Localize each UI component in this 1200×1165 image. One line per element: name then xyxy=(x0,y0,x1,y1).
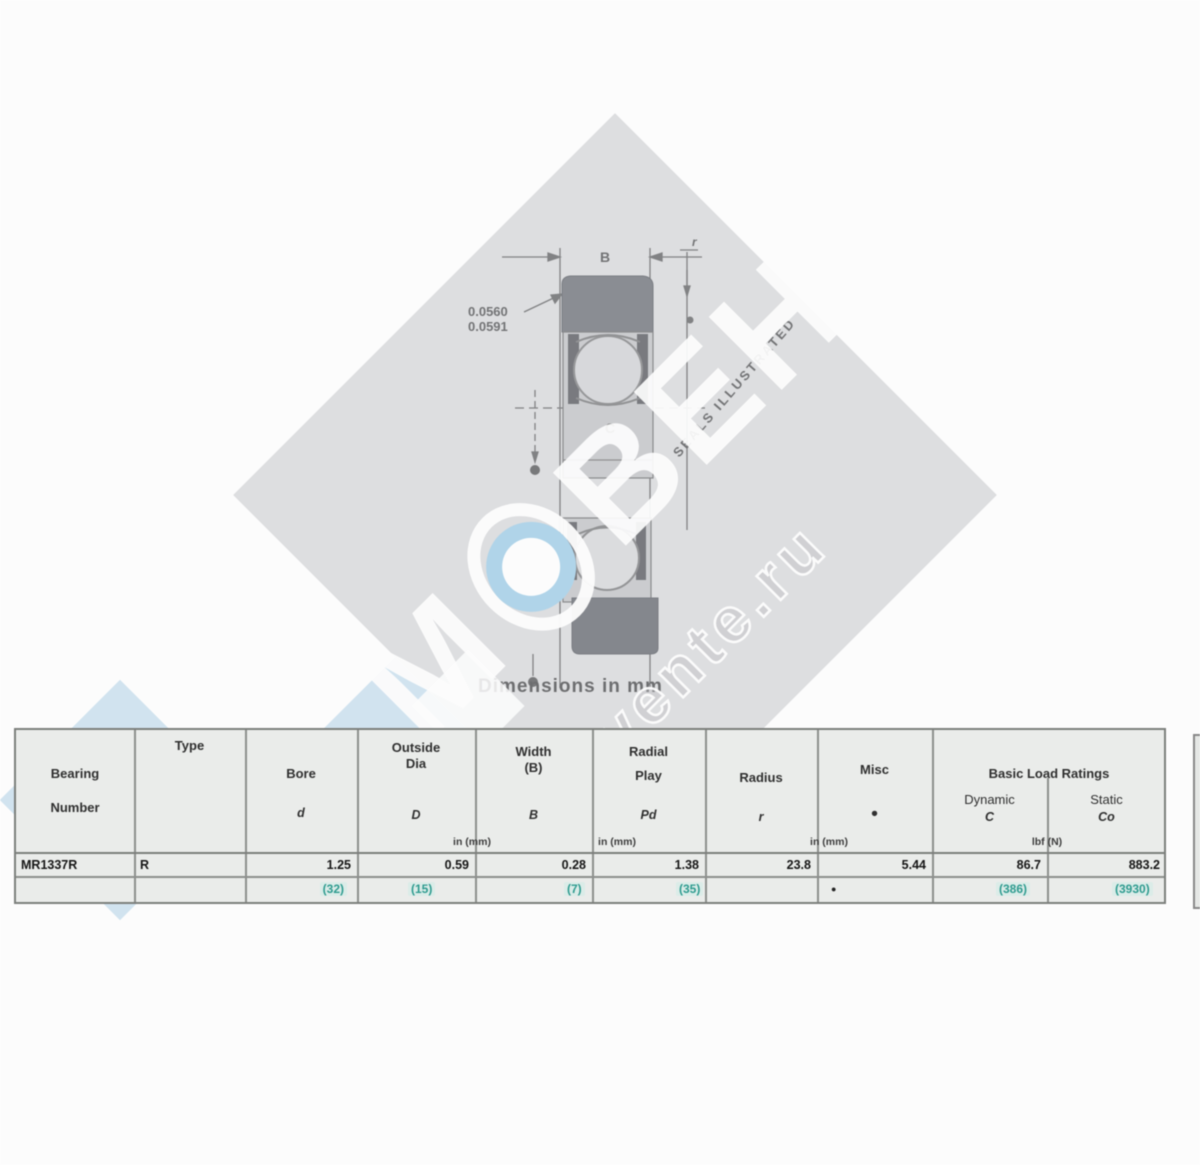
symbol-r: r xyxy=(705,810,817,824)
cell-play: 1.38 xyxy=(592,858,699,872)
header-dia: Dia xyxy=(357,756,475,772)
unit-note-right: in (mm) xyxy=(779,836,879,848)
header-type: Type xyxy=(134,738,245,754)
header-load-ratings: Basic Load Ratings xyxy=(932,766,1166,782)
cell-od: 0.59 xyxy=(357,858,469,872)
cell-play-mm: (35) xyxy=(676,882,703,896)
cell-od-mm: (15) xyxy=(408,882,435,896)
header-number: Number xyxy=(16,800,134,816)
header-play: Play xyxy=(592,768,705,784)
symbol-d: d xyxy=(245,806,357,820)
spec-table: Bearing Number Type Bore d Outside Dia D… xyxy=(14,728,1166,904)
table-row-border xyxy=(16,876,1164,878)
header-width-b: (B) xyxy=(475,760,592,776)
header-misc: Misc xyxy=(817,762,932,778)
catalog-page: B r C 0.0560 0.0591 SEALS ILLUSTRATED Di… xyxy=(0,0,1200,1165)
symbol-co: Co xyxy=(1047,810,1166,824)
symbol-dot: ● xyxy=(817,806,932,820)
symbol-c: C xyxy=(932,810,1047,824)
cell-static-n: (3930) xyxy=(1112,882,1153,896)
header-bearing: Bearing xyxy=(16,766,134,782)
header-outside: Outside xyxy=(357,740,475,756)
unit-note-left: in (mm) xyxy=(422,836,522,848)
cell-dynamic-n: (386) xyxy=(996,882,1030,896)
unit-note-mid: in (mm) xyxy=(567,836,667,848)
cell-static: 883.2 xyxy=(1047,858,1160,872)
symbol-B: B xyxy=(475,808,592,822)
header-radius: Radius xyxy=(705,770,817,786)
cell-dynamic: 86.7 xyxy=(932,858,1041,872)
cell-radius: 23.8 xyxy=(705,858,811,872)
cell-width-mm: (7) xyxy=(564,882,585,896)
header-static: Static xyxy=(1047,792,1166,808)
cell-type: R xyxy=(140,858,149,872)
cell-misc: 5.44 xyxy=(817,858,926,872)
header-dynamic: Dynamic xyxy=(932,792,1047,808)
header-width: Width xyxy=(475,744,592,760)
header-bore: Bore xyxy=(245,766,357,782)
symbol-D: D xyxy=(357,808,475,822)
cell-width: 0.28 xyxy=(475,858,586,872)
symbol-pd: Pd xyxy=(592,808,705,822)
cell-radius-mark: ● xyxy=(828,884,839,894)
cell-bore: 1.25 xyxy=(245,858,351,872)
cell-bore-mm: (32) xyxy=(320,882,347,896)
unit-note-load: lbf (N) xyxy=(992,836,1102,848)
table-header-border xyxy=(16,852,1164,854)
adjacent-table-fragment xyxy=(1193,734,1200,909)
header-radial: Radial xyxy=(592,744,705,760)
cell-bearing-number: MR1337R xyxy=(21,858,77,872)
